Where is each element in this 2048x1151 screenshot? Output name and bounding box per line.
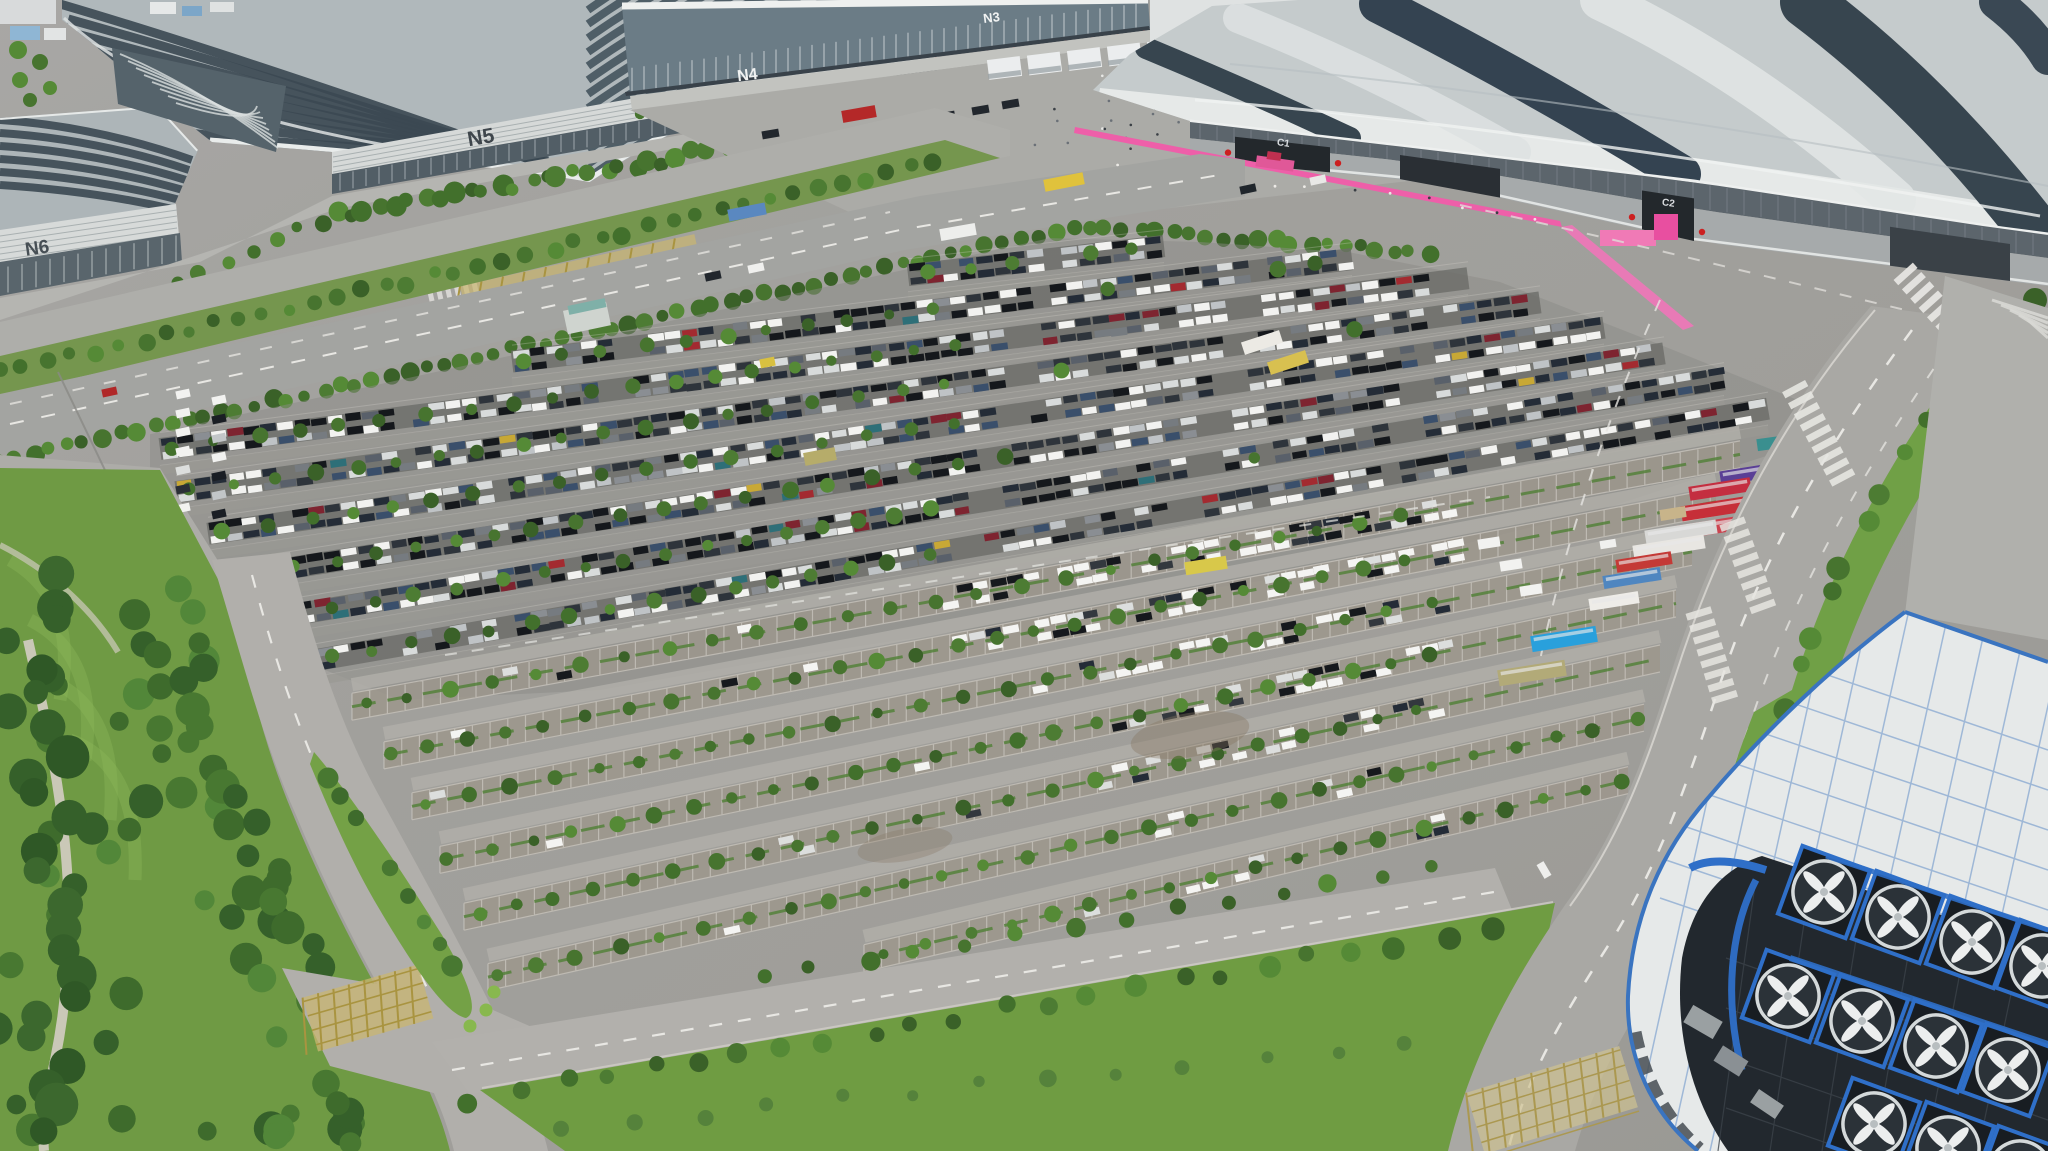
svg-text:C2: C2 (1661, 197, 1676, 210)
svg-text:N6: N6 (24, 236, 51, 260)
svg-text:C1: C1 (1276, 137, 1291, 150)
svg-text:N5: N5 (466, 124, 497, 151)
svg-text:N3: N3 (982, 9, 1000, 26)
